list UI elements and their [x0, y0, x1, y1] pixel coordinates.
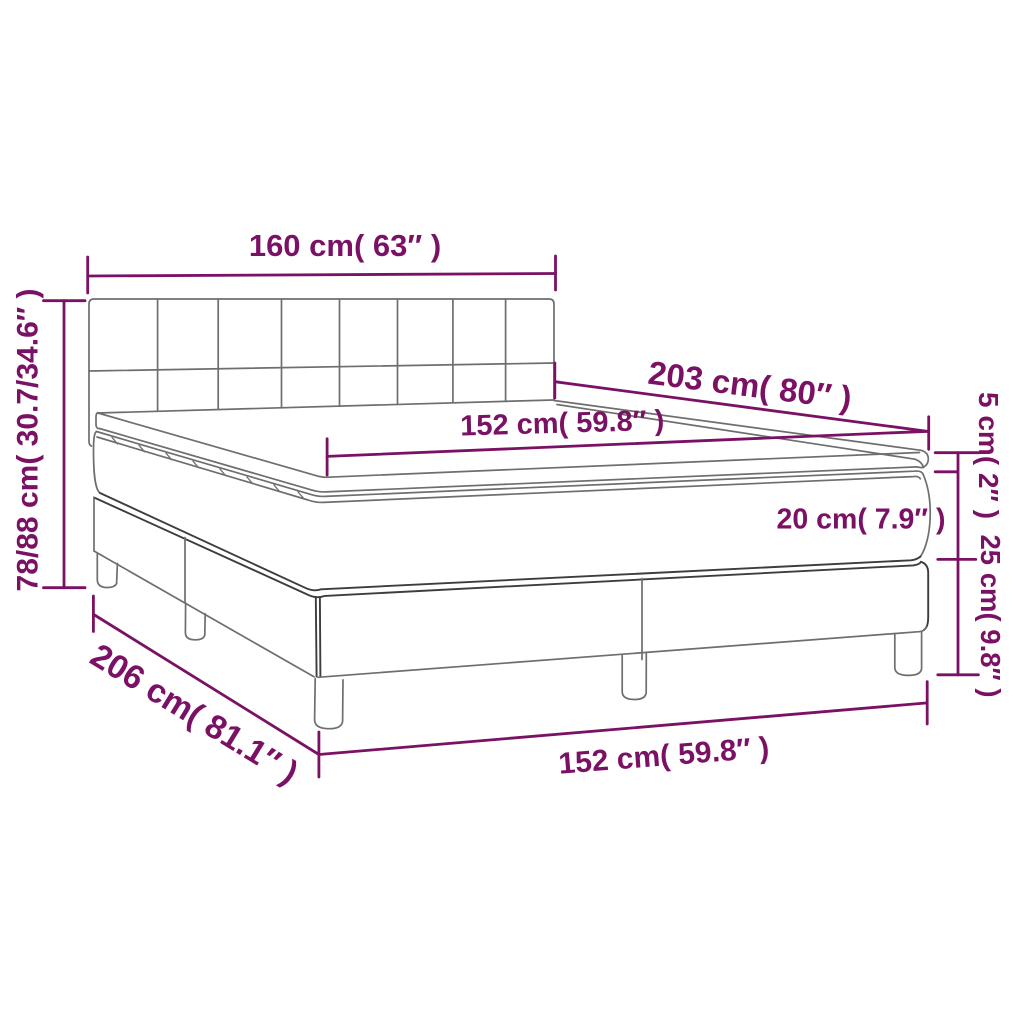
svg-text:5 cm( 2″ ): 5 cm( 2″ ) — [973, 392, 1004, 519]
svg-text:20 cm( 7.9″ ): 20 cm( 7.9″ ) — [777, 503, 946, 535]
svg-text:160 cm( 63″ ): 160 cm( 63″ ) — [249, 228, 441, 263]
svg-text:152 cm( 59.8″ ): 152 cm( 59.8″ ) — [460, 405, 665, 443]
svg-text:25 cm( 9.8″ ): 25 cm( 9.8″ ) — [975, 535, 1006, 698]
svg-text:78/88 cm( 30.7/34.6″ ): 78/88 cm( 30.7/34.6″ ) — [12, 289, 45, 592]
